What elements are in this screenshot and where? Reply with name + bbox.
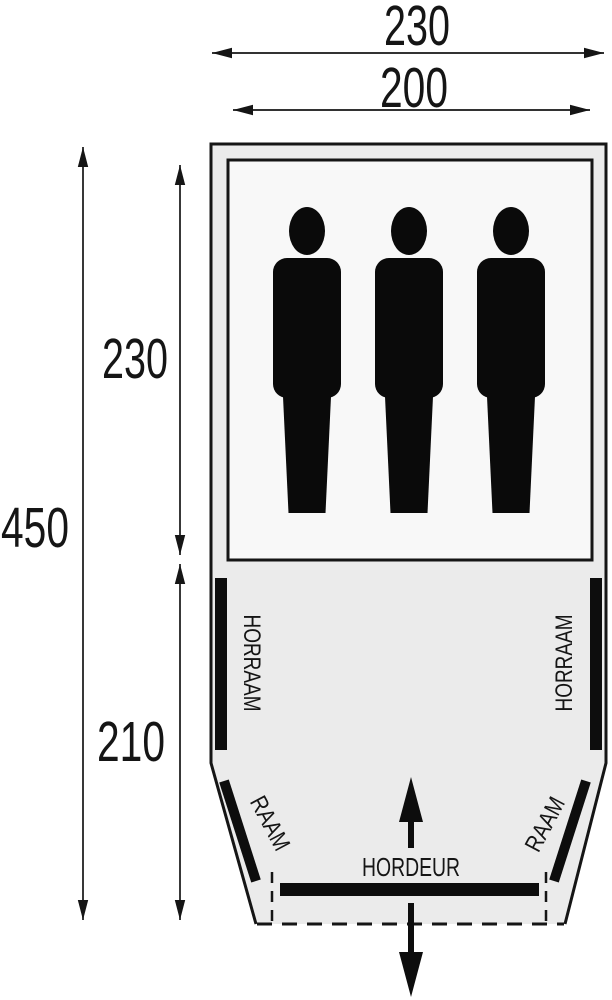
- person-head: [391, 207, 427, 255]
- person-head: [493, 207, 529, 255]
- person-torso: [477, 258, 545, 398]
- left-mesh-window-bar: [215, 578, 227, 750]
- person-torso: [273, 258, 341, 398]
- right-mesh-window-bar: [590, 578, 602, 750]
- person-head: [289, 207, 325, 255]
- person-silhouettes: [273, 207, 545, 513]
- front-door-label: HORDEUR: [362, 852, 460, 882]
- tent-floorplan-figure: 230 200 450 230 210 HORRAAM HORRAAM RAAM…: [0, 0, 612, 1000]
- top-width-value: 230: [384, 0, 450, 58]
- person-legs: [283, 386, 332, 513]
- total-length-value: 450: [1, 496, 69, 560]
- person-torso: [375, 258, 443, 398]
- inner-width-value: 200: [380, 56, 448, 120]
- right-mesh-window-label: HORRAAM: [551, 615, 578, 712]
- door-threshold-bar: [280, 883, 539, 896]
- left-mesh-window-label: HORRAAM: [238, 615, 265, 712]
- sleeping-length-value: 230: [102, 327, 168, 391]
- tent-floorplan-diagram: 230 200 450 230 210 HORRAAM HORRAAM RAAM…: [0, 0, 612, 1000]
- living-length-value: 210: [97, 710, 165, 774]
- person-legs: [385, 386, 434, 513]
- person-legs: [487, 386, 536, 513]
